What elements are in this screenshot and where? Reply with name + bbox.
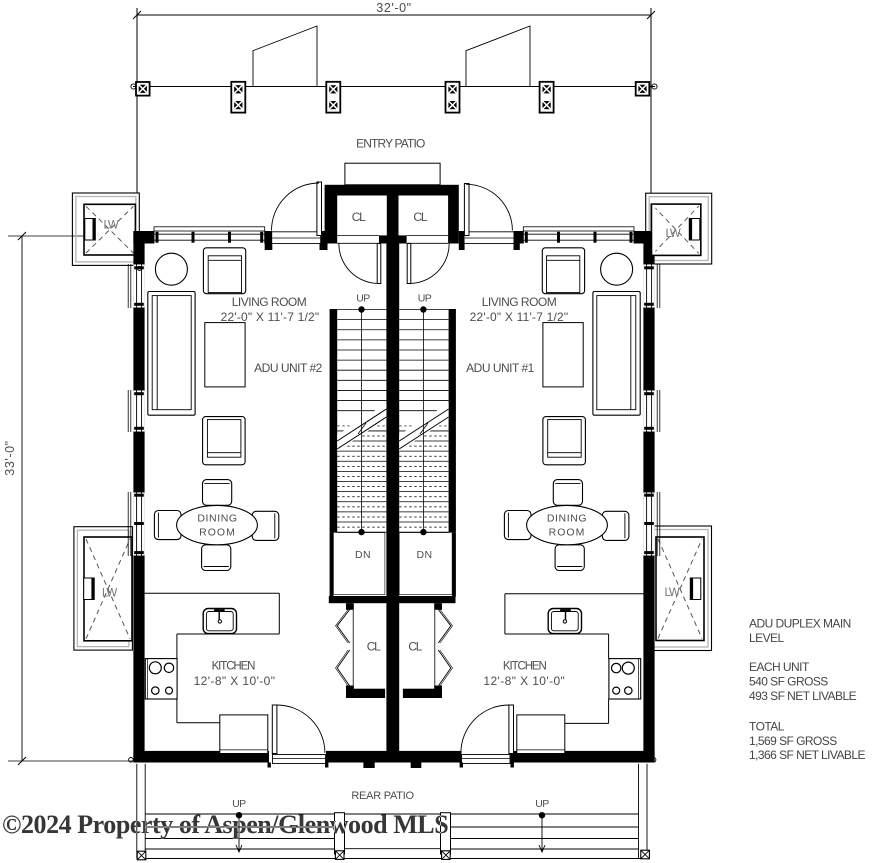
svg-text:LW: LW [102,588,117,600]
svg-text:33'-0": 33'-0" [3,440,17,475]
svg-text:ADU DUPLEX MAIN: ADU DUPLEX MAIN [749,617,851,631]
svg-text:1,366 SF NET LIVABLE: 1,366 SF NET LIVABLE [749,748,866,762]
svg-text:LIVING ROOM: LIVING ROOM [232,295,307,309]
svg-text:1,569 SF GROSS: 1,569 SF GROSS [749,734,837,748]
svg-text:EACH UNIT: EACH UNIT [749,660,810,674]
svg-text:CL: CL [408,639,422,653]
svg-text:22'-0" X 11'-7 1/2": 22'-0" X 11'-7 1/2" [470,310,569,324]
svg-text:CL: CL [367,639,381,653]
svg-text:DINING: DINING [547,513,587,525]
svg-text:ROOM: ROOM [549,527,586,539]
svg-text:UP: UP [418,293,432,305]
svg-text:ROOM: ROOM [199,527,236,539]
svg-text:UP: UP [232,798,246,810]
svg-text:12'-8" X 10'-0": 12'-8" X 10'-0" [194,674,276,688]
svg-text:DN: DN [355,549,371,561]
svg-text:22'-0" X 11'-7 1/2": 22'-0" X 11'-7 1/2" [221,310,320,324]
svg-text:CL: CL [413,210,427,224]
svg-text:ENTRY PATIO: ENTRY PATIO [356,137,425,151]
svg-text:KITCHEN: KITCHEN [503,661,547,673]
svg-text:32'-0": 32'-0" [376,1,411,15]
svg-text:12'-8" X 10'-0": 12'-8" X 10'-0" [483,674,565,688]
svg-text:540 SF GROSS: 540 SF GROSS [749,674,828,688]
svg-text:KITCHEN: KITCHEN [212,661,256,673]
svg-text:REAR PATIO: REAR PATIO [351,790,414,802]
svg-text:LEVEL: LEVEL [749,631,784,645]
svg-text:DN: DN [417,549,433,561]
svg-text:©2024 Property of Aspen/Glenwo: ©2024 Property of Aspen/Glenwood MLS [2,810,448,839]
svg-text:UP: UP [535,798,549,810]
svg-text:UP: UP [356,293,370,305]
svg-text:DINING: DINING [197,513,237,525]
svg-text:ADU UNIT #1: ADU UNIT #1 [466,361,534,375]
svg-text:ADU UNIT #2: ADU UNIT #2 [254,361,322,375]
svg-text:LW: LW [666,228,681,240]
svg-text:LIVING ROOM: LIVING ROOM [482,295,557,309]
svg-text:LW: LW [104,220,119,232]
svg-text:493 SF NET LIVABLE: 493 SF NET LIVABLE [749,689,857,703]
svg-text:CL: CL [352,210,366,224]
svg-text:TOTAL: TOTAL [749,719,785,733]
svg-text:LW: LW [665,587,680,599]
